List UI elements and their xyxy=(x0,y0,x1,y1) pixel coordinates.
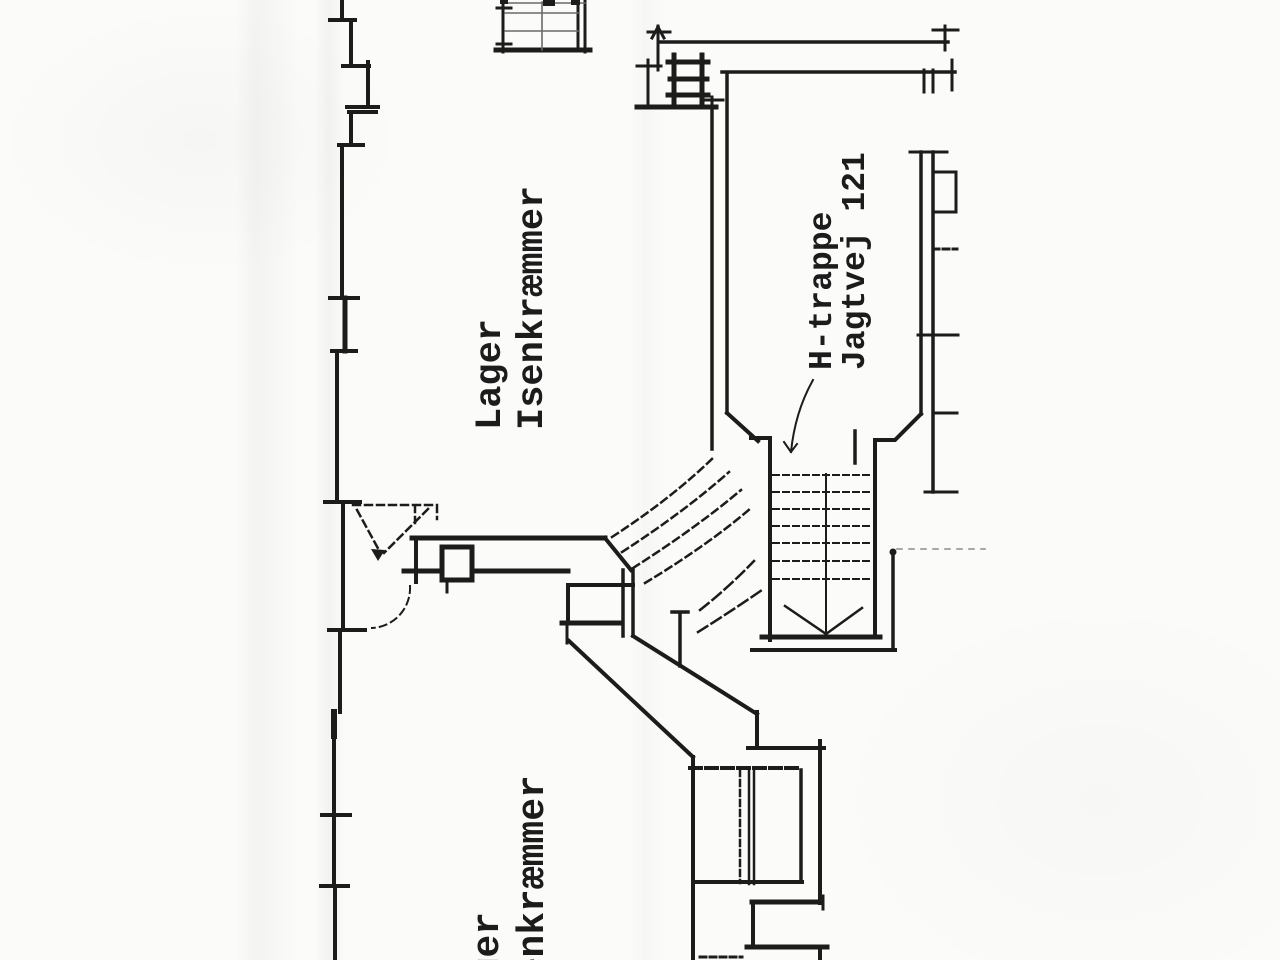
staircase xyxy=(752,380,985,650)
room-label-storage: Lager Isenkræmmer xyxy=(470,186,554,430)
floorplan-scan-page: Lager Isenkræmmer H-trappe Jagtvej 121 L… xyxy=(0,0,1280,960)
corridor-lower-left xyxy=(353,505,633,636)
exterior-wall-right xyxy=(875,152,958,492)
stair-hall-west-wall xyxy=(712,74,770,449)
room-label-staircase-line1: H-trappe xyxy=(806,152,839,370)
room-label-storage-bottom-line2: Isenkræmmer xyxy=(511,775,556,960)
skylight-grid xyxy=(496,0,590,52)
room-label-staircase-line2: Jagtvej 121 xyxy=(839,152,872,370)
room-label-storage-bottom-line1: Lager xyxy=(466,775,511,960)
room-label-storage-bottom: Lager Isenkræmmer xyxy=(466,775,556,960)
exterior-wall-left xyxy=(321,0,378,960)
floorplan-drawing xyxy=(0,0,1280,960)
room-label-storage-line2: Isenkræmmer xyxy=(512,186,554,430)
top-walls xyxy=(637,26,958,112)
bottom-shaft xyxy=(690,768,802,884)
bottom-right-recess xyxy=(700,896,827,960)
room-label-staircase: H-trappe Jagtvej 121 xyxy=(806,152,872,370)
label-leader-line xyxy=(784,380,813,452)
room-label-storage-line1: Lager xyxy=(470,186,512,430)
